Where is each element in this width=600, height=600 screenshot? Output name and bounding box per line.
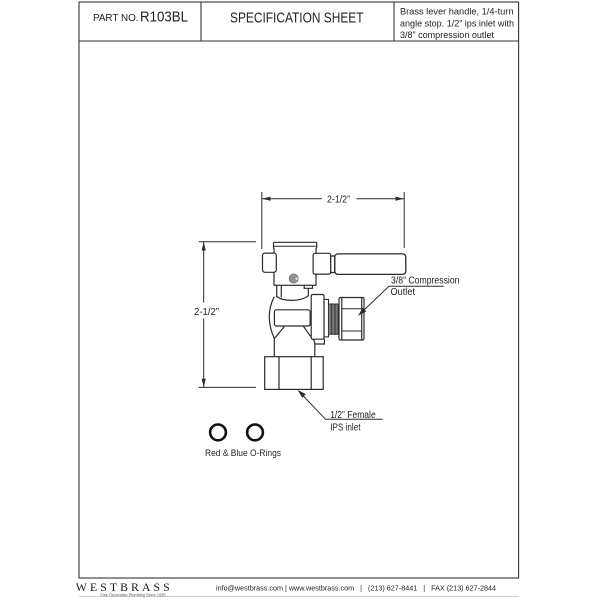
svg-text:Outlet: Outlet: [391, 287, 416, 298]
svg-text:2-1/2”: 2-1/2”: [327, 194, 350, 205]
svg-text:Brass lever handle, 1/4-turn: Brass lever handle, 1/4-turn: [400, 7, 514, 18]
svg-text:SPECIFICATION SHEET: SPECIFICATION SHEET: [230, 11, 364, 27]
svg-text:IPS inlet: IPS inlet: [330, 423, 360, 434]
svg-text:angle stop. 1/2” ips inlet wit: angle stop. 1/2” ips inlet with: [400, 19, 514, 30]
svg-text:1/2” Female: 1/2” Female: [330, 410, 376, 421]
svg-text:info@westbrass.com | www.westb: info@westbrass.com | www.westbrass.com |…: [216, 586, 496, 593]
svg-text:3/8” compression outlet: 3/8” compression outlet: [400, 30, 494, 41]
svg-text:R103BL: R103BL: [140, 10, 188, 26]
svg-text:3/8” Compression: 3/8” Compression: [391, 275, 460, 286]
svg-text:Red & Blue O-Rings: Red & Blue O-Rings: [205, 448, 281, 459]
svg-text:PART NO.: PART NO.: [93, 13, 139, 24]
svg-text:2-1/2”: 2-1/2”: [194, 307, 219, 318]
